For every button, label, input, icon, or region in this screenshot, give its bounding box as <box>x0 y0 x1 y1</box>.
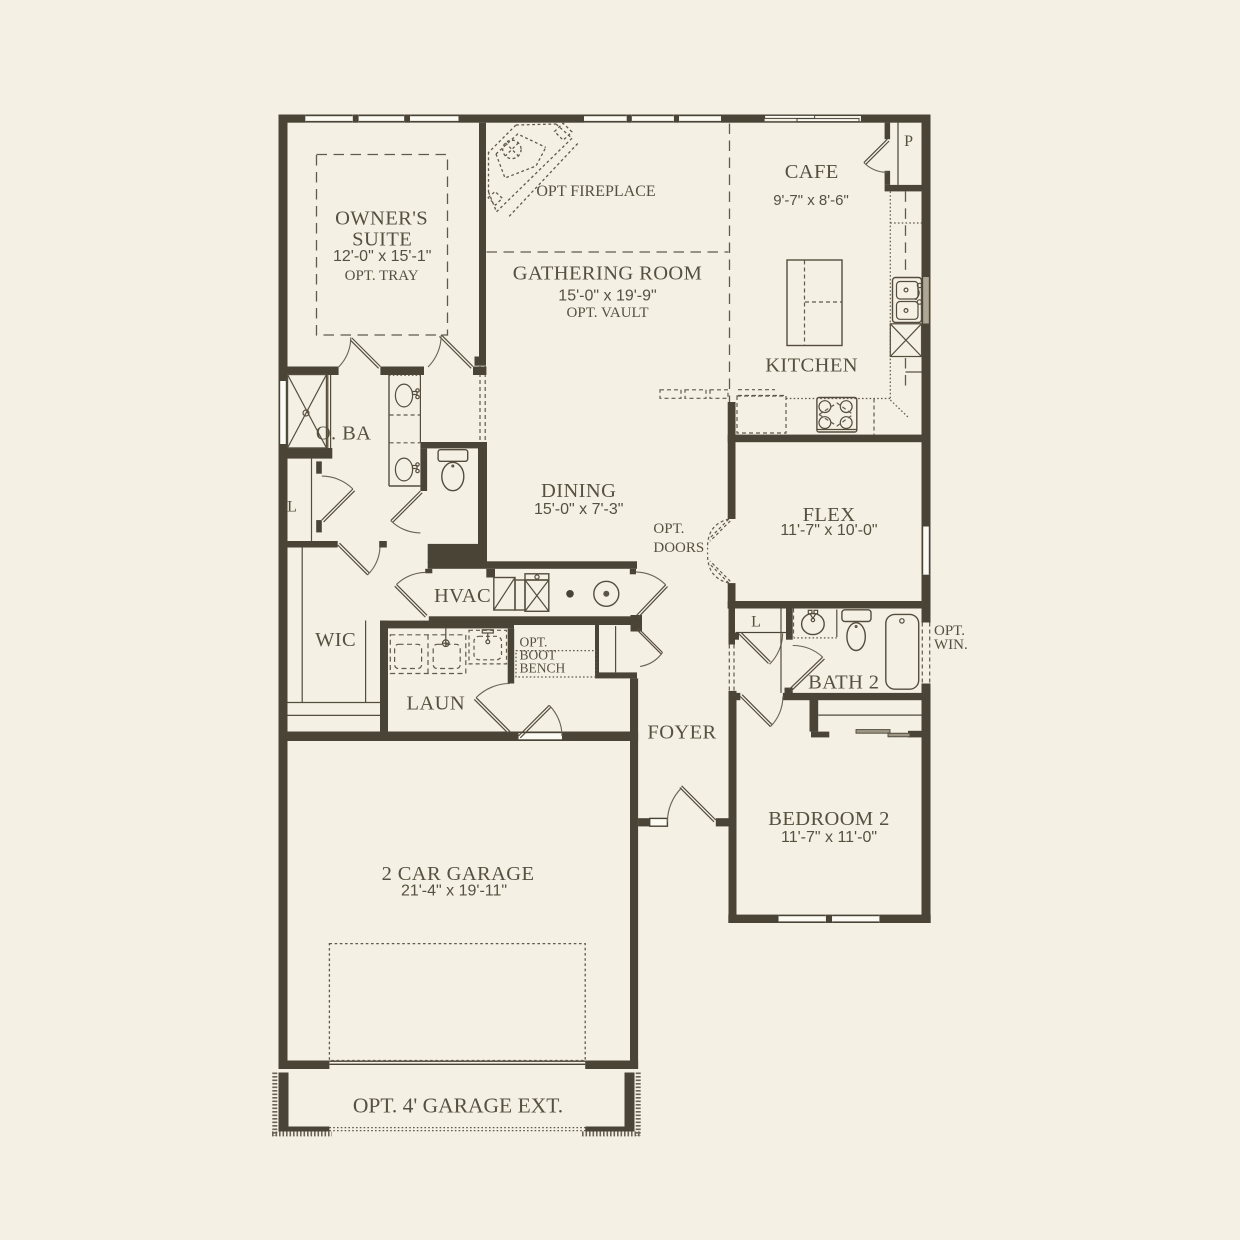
svg-text:15'-0" x 19'-9": 15'-0" x 19'-9" <box>558 287 656 304</box>
svg-text:11'-7" x 11'-0": 11'-7" x 11'-0" <box>781 829 877 846</box>
svg-text:KITCHEN: KITCHEN <box>765 355 858 377</box>
svg-text:GATHERING ROOM: GATHERING ROOM <box>513 263 703 285</box>
svg-text:L: L <box>287 499 297 516</box>
svg-text:11'-7" x 10'-0": 11'-7" x 10'-0" <box>780 522 877 539</box>
svg-text:HVAC: HVAC <box>434 585 491 607</box>
svg-text:OPT. TRAY: OPT. TRAY <box>345 268 419 284</box>
svg-text:15'-0" x 7'-3": 15'-0" x 7'-3" <box>534 501 624 518</box>
svg-text:O. BA: O. BA <box>316 423 372 445</box>
svg-text:OPT.: OPT. <box>653 521 684 537</box>
svg-text:P: P <box>904 133 913 150</box>
svg-text:OPT. VAULT: OPT. VAULT <box>567 305 649 321</box>
svg-text:CAFE: CAFE <box>785 161 839 183</box>
svg-text:FOYER: FOYER <box>647 722 716 744</box>
svg-text:21'-4" x 19'-11": 21'-4" x 19'-11" <box>401 882 507 899</box>
svg-text:OPT. 4' GARAGE EXT.: OPT. 4' GARAGE EXT. <box>353 1094 563 1118</box>
svg-text:OWNER'S: OWNER'S <box>335 207 428 229</box>
svg-text:DOORS: DOORS <box>653 540 704 556</box>
svg-text:WIN.: WIN. <box>934 637 968 653</box>
svg-text:9'-7" x 8'-6": 9'-7" x 8'-6" <box>773 192 849 209</box>
svg-text:WIC: WIC <box>315 629 356 651</box>
svg-text:OPT FIREPLACE: OPT FIREPLACE <box>536 183 655 200</box>
svg-text:DINING: DINING <box>541 480 616 502</box>
svg-text:BENCH: BENCH <box>520 661 566 676</box>
svg-text:BATH 2: BATH 2 <box>808 671 879 693</box>
svg-text:LAUN: LAUN <box>407 693 466 715</box>
svg-text:BEDROOM 2: BEDROOM 2 <box>768 808 890 830</box>
svg-text:L: L <box>751 613 761 630</box>
svg-text:12'-0" x 15'-1": 12'-0" x 15'-1" <box>333 248 431 265</box>
